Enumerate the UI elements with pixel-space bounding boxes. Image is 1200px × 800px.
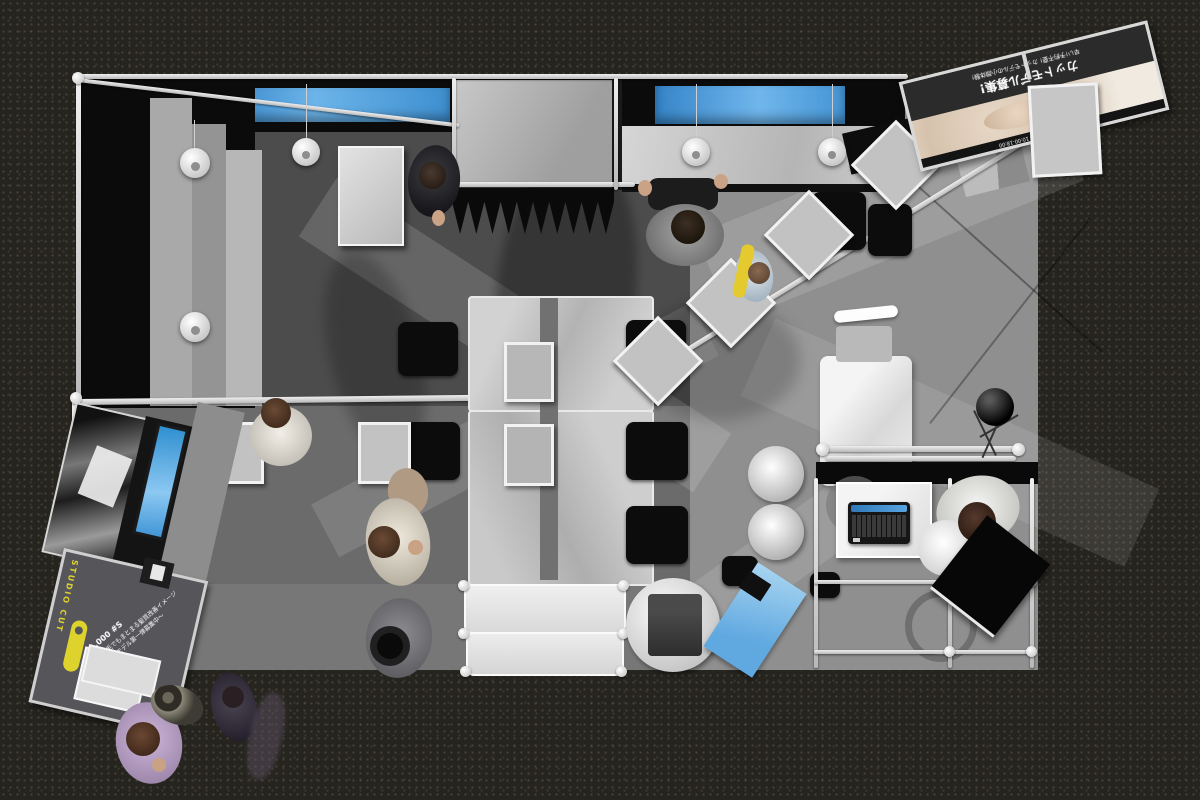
laptop-key-white	[853, 538, 860, 542]
lamp-stem	[696, 84, 697, 140]
round-table-box	[648, 594, 702, 656]
person-white-head	[261, 398, 291, 428]
hanging-panel-banner	[1028, 82, 1103, 178]
desk-rail	[826, 456, 1016, 461]
left-wall-step-panel	[226, 150, 262, 406]
person-seated-head	[368, 526, 400, 558]
visitor-woman-hand	[152, 758, 166, 772]
frame-rail-top	[76, 74, 908, 79]
frame-node	[460, 666, 471, 677]
left-wall-step-panel	[150, 98, 192, 406]
front-counter	[464, 584, 626, 634]
frame-node	[458, 628, 469, 639]
frame-node	[618, 580, 629, 591]
person-counter-head	[671, 210, 705, 244]
laptop-keyboard	[852, 515, 906, 537]
front-counter	[466, 632, 624, 676]
cube-chair	[626, 422, 688, 480]
lamp-center	[191, 326, 200, 335]
laptop	[848, 502, 910, 544]
person-hat-crown	[377, 633, 403, 659]
table-monitor-panel	[504, 342, 554, 402]
cube-chair	[868, 204, 912, 256]
frame-node	[458, 580, 469, 591]
floor-grid-rail	[814, 650, 1034, 654]
person-suit-hand	[432, 210, 445, 226]
frame-node	[72, 72, 84, 84]
lamp-center	[828, 151, 836, 159]
frame-node	[616, 666, 627, 677]
frame-node	[1012, 443, 1025, 456]
person-counter-hand	[638, 180, 652, 196]
lamp-stem	[306, 84, 307, 142]
frame-rail-left	[76, 78, 81, 410]
storage-cabinet	[338, 146, 404, 246]
person-suit-head	[419, 162, 446, 189]
person-seated-hand	[408, 540, 423, 555]
cube-chair	[626, 506, 688, 564]
black-sphere	[976, 388, 1014, 426]
top-wall-screen-right	[655, 86, 845, 124]
visitor-child-head	[222, 686, 244, 708]
child-head	[748, 262, 770, 284]
table-monitor-panel	[504, 424, 554, 486]
top-counter-left	[452, 80, 617, 184]
frame-post	[614, 78, 618, 190]
styling-chair-seat	[836, 326, 892, 362]
frame-node	[816, 443, 829, 456]
cube-chair	[398, 322, 458, 376]
lamp-stem	[832, 84, 833, 140]
booth-render: STUDIO CUT 1,000 #S くせ毛でもまとまる髪質改善イメージ 〜体…	[0, 0, 1200, 800]
frame-node	[944, 646, 955, 657]
lamp-center	[692, 151, 700, 159]
sign-top-box-switch	[150, 564, 166, 582]
person-counter-hand	[714, 174, 728, 189]
lamp-center	[191, 162, 200, 171]
white-stool	[748, 446, 804, 502]
counter-rail	[440, 182, 635, 187]
floor-grid-rail	[814, 478, 818, 668]
lamp-center	[302, 151, 310, 159]
frame-node	[1026, 646, 1037, 657]
white-stool	[748, 504, 804, 560]
photo-panel-sheet	[78, 445, 133, 507]
laptop-hinge-screen	[851, 505, 907, 512]
visitor-woman-head	[126, 722, 160, 756]
